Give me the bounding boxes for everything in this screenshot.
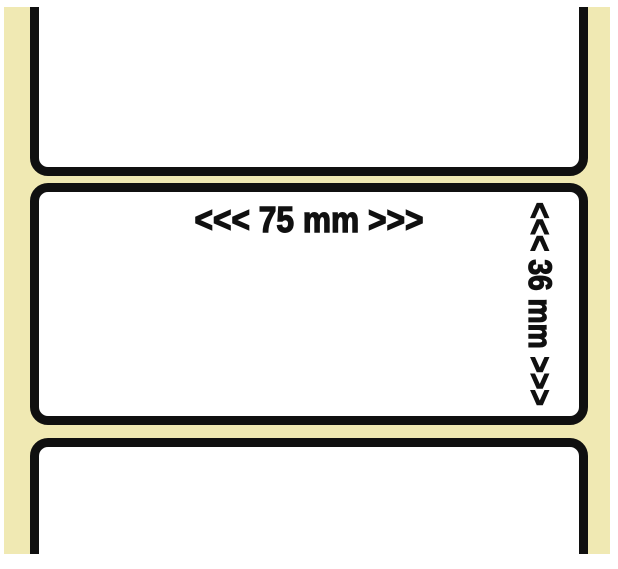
label-roll-image: <<< 75 mm >>> <<< 36 mm >>> (0, 0, 618, 569)
label-bottom (30, 438, 588, 554)
liner-strip: <<< 75 mm >>> <<< 36 mm >>> (4, 7, 610, 554)
label-top (30, 7, 588, 176)
label-middle: <<< 75 mm >>> <<< 36 mm >>> (30, 183, 588, 425)
label-width-dimension: <<< 75 mm >>> (71, 202, 546, 238)
label-height-dimension: <<< 36 mm >>> (524, 202, 556, 406)
